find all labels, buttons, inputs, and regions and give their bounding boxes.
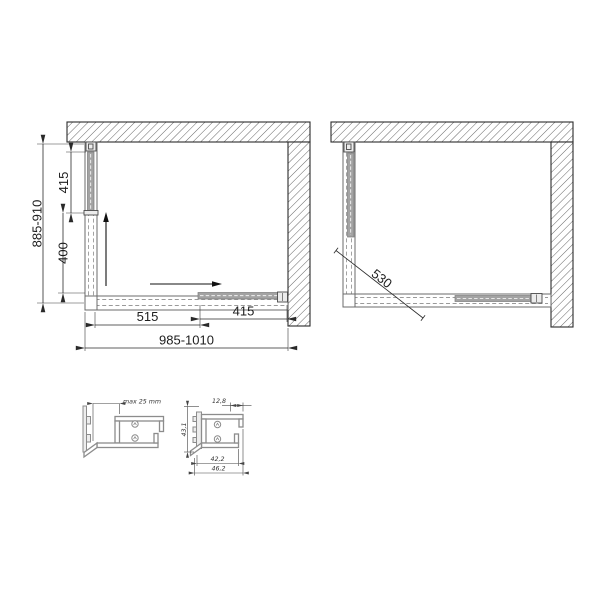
dim-inner-width: 42,2 — [210, 456, 224, 463]
screw — [132, 421, 138, 427]
dim-front-fixed: 515 — [137, 309, 159, 324]
dim-side-fixed: 400 — [56, 242, 71, 264]
dim-depth-overall: 885-910 — [30, 200, 45, 248]
top-wall — [331, 122, 573, 142]
dim-side-door: 415 — [56, 172, 71, 194]
dim-outer-width: 46,2 — [211, 466, 225, 473]
dim-width-overall: 985-1010 — [159, 333, 214, 348]
side-sliding-door — [88, 152, 95, 213]
front-sliding-door — [198, 293, 286, 300]
dim-wall-adjustment: max 25 mm — [123, 399, 161, 406]
dim-profile-height: 43,1 — [181, 422, 188, 436]
top-wall-bracket-inner — [89, 144, 94, 149]
corner-post — [85, 296, 97, 310]
dim-front-door: 415 — [233, 304, 255, 319]
shower-enclosure-drawing: 885-910 415 400 515 415 985-1010 — [0, 0, 600, 600]
profile-bottom-hook — [235, 434, 239, 443]
profile-top-bar — [202, 415, 244, 420]
screw — [132, 435, 138, 441]
side-sliding-door — [348, 153, 355, 237]
dim-top-width: 12,8 — [212, 398, 226, 405]
profile-left-column — [115, 421, 120, 443]
screw — [214, 436, 220, 442]
profile-top-lip — [160, 421, 164, 432]
profile-bottom-hook — [154, 434, 158, 444]
profile-bottom-bar — [97, 443, 158, 448]
top-wall — [67, 122, 310, 142]
profile-top-bar — [115, 417, 164, 422]
corner-post — [343, 294, 355, 307]
profile-bottom-bar — [202, 443, 239, 448]
right-wall — [288, 142, 310, 326]
front-sliding-door — [455, 296, 532, 302]
profile-top-lip — [239, 419, 243, 427]
wall-strip — [83, 406, 87, 452]
mid-bracket — [84, 211, 98, 216]
profile-left-column — [202, 419, 207, 443]
screw — [214, 421, 220, 427]
top-wall-bracket-inner — [347, 144, 352, 150]
right-wall — [551, 142, 573, 327]
